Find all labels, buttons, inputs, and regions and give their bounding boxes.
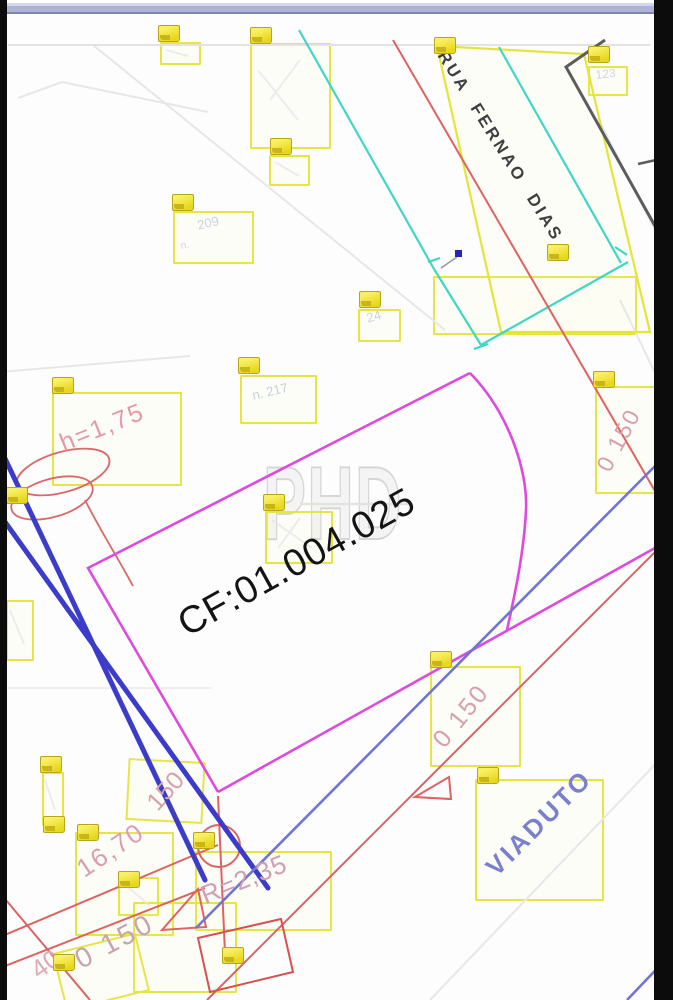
sticky-note-icon[interactable] [359,291,381,308]
node-marker [441,250,462,268]
left-edge-strip [0,0,7,1000]
lot-boundary [88,373,655,792]
sticky-note-icon[interactable] [430,651,452,668]
sticky-note-icon[interactable] [193,832,215,849]
house-number-209-prefix: n. [180,241,190,253]
sticky-note-icon[interactable] [270,138,292,155]
sticky-note-icon[interactable] [118,871,140,888]
sticky-note-icon[interactable] [40,756,62,773]
sticky-note-icon[interactable] [477,767,499,784]
sticky-note-icon[interactable] [172,194,194,211]
sticky-note-icon[interactable] [77,824,99,841]
sticky-note-icon[interactable] [547,244,569,261]
sticky-note-icon[interactable] [52,377,74,394]
sticky-note-icon[interactable] [238,357,260,374]
sticky-note-icon[interactable] [588,46,610,63]
sticky-note-icon[interactable] [593,371,615,388]
sticky-note-icon[interactable] [158,25,180,42]
sticky-note-icon[interactable] [222,947,244,964]
sticky-note-icon[interactable] [250,27,272,44]
window-titlebar [0,0,673,14]
sticky-note-icon[interactable] [43,816,65,833]
sticky-note-icon[interactable] [53,954,75,971]
right-edge-strip [654,0,673,1000]
cad-drawing-canvas: PHD RUA FERNAO DIAS CF:01.004.025 VIADUT… [0,0,673,1000]
house-number-123: 123 [595,67,616,82]
sticky-note-icon[interactable] [434,37,456,54]
sticky-note-icon[interactable] [263,494,285,511]
sticky-note-icon[interactable] [6,487,28,504]
